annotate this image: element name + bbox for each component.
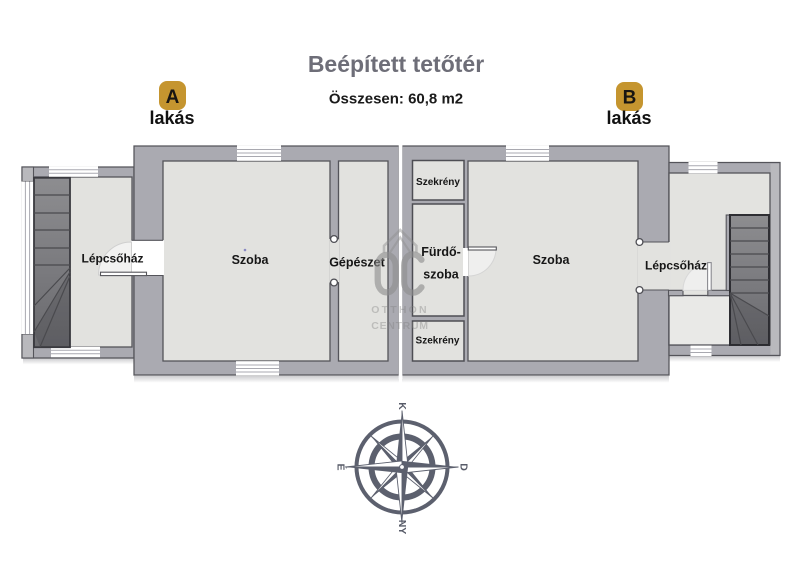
svg-text:szoba: szoba — [423, 268, 459, 282]
svg-text:lakás: lakás — [149, 108, 194, 128]
svg-text:Szekrény: Szekrény — [416, 336, 460, 347]
svg-text:K: K — [396, 402, 408, 410]
svg-text:Lépcsőház: Lépcsőház — [645, 259, 707, 273]
svg-text:É: É — [335, 463, 348, 470]
svg-text:OTTHON: OTTHON — [371, 304, 429, 316]
svg-text:Összesen: 60,8 m2: Összesen: 60,8 m2 — [329, 91, 463, 108]
svg-text:Szoba: Szoba — [232, 253, 270, 267]
svg-text:Fürdő-: Fürdő- — [421, 245, 461, 259]
svg-text:D: D — [458, 463, 470, 471]
svg-text:CENTRUM: CENTRUM — [371, 320, 428, 332]
svg-text:A: A — [166, 87, 180, 108]
svg-text:NY: NY — [396, 520, 408, 535]
svg-text:Szekrény: Szekrény — [416, 177, 460, 188]
svg-text:Szoba: Szoba — [533, 253, 571, 267]
svg-text:B: B — [623, 88, 637, 109]
svg-text:Lépcsőház: Lépcsőház — [81, 252, 143, 266]
svg-text:lakás: lakás — [606, 108, 651, 128]
svg-text:Beépített tetőtér: Beépített tetőtér — [308, 51, 484, 77]
